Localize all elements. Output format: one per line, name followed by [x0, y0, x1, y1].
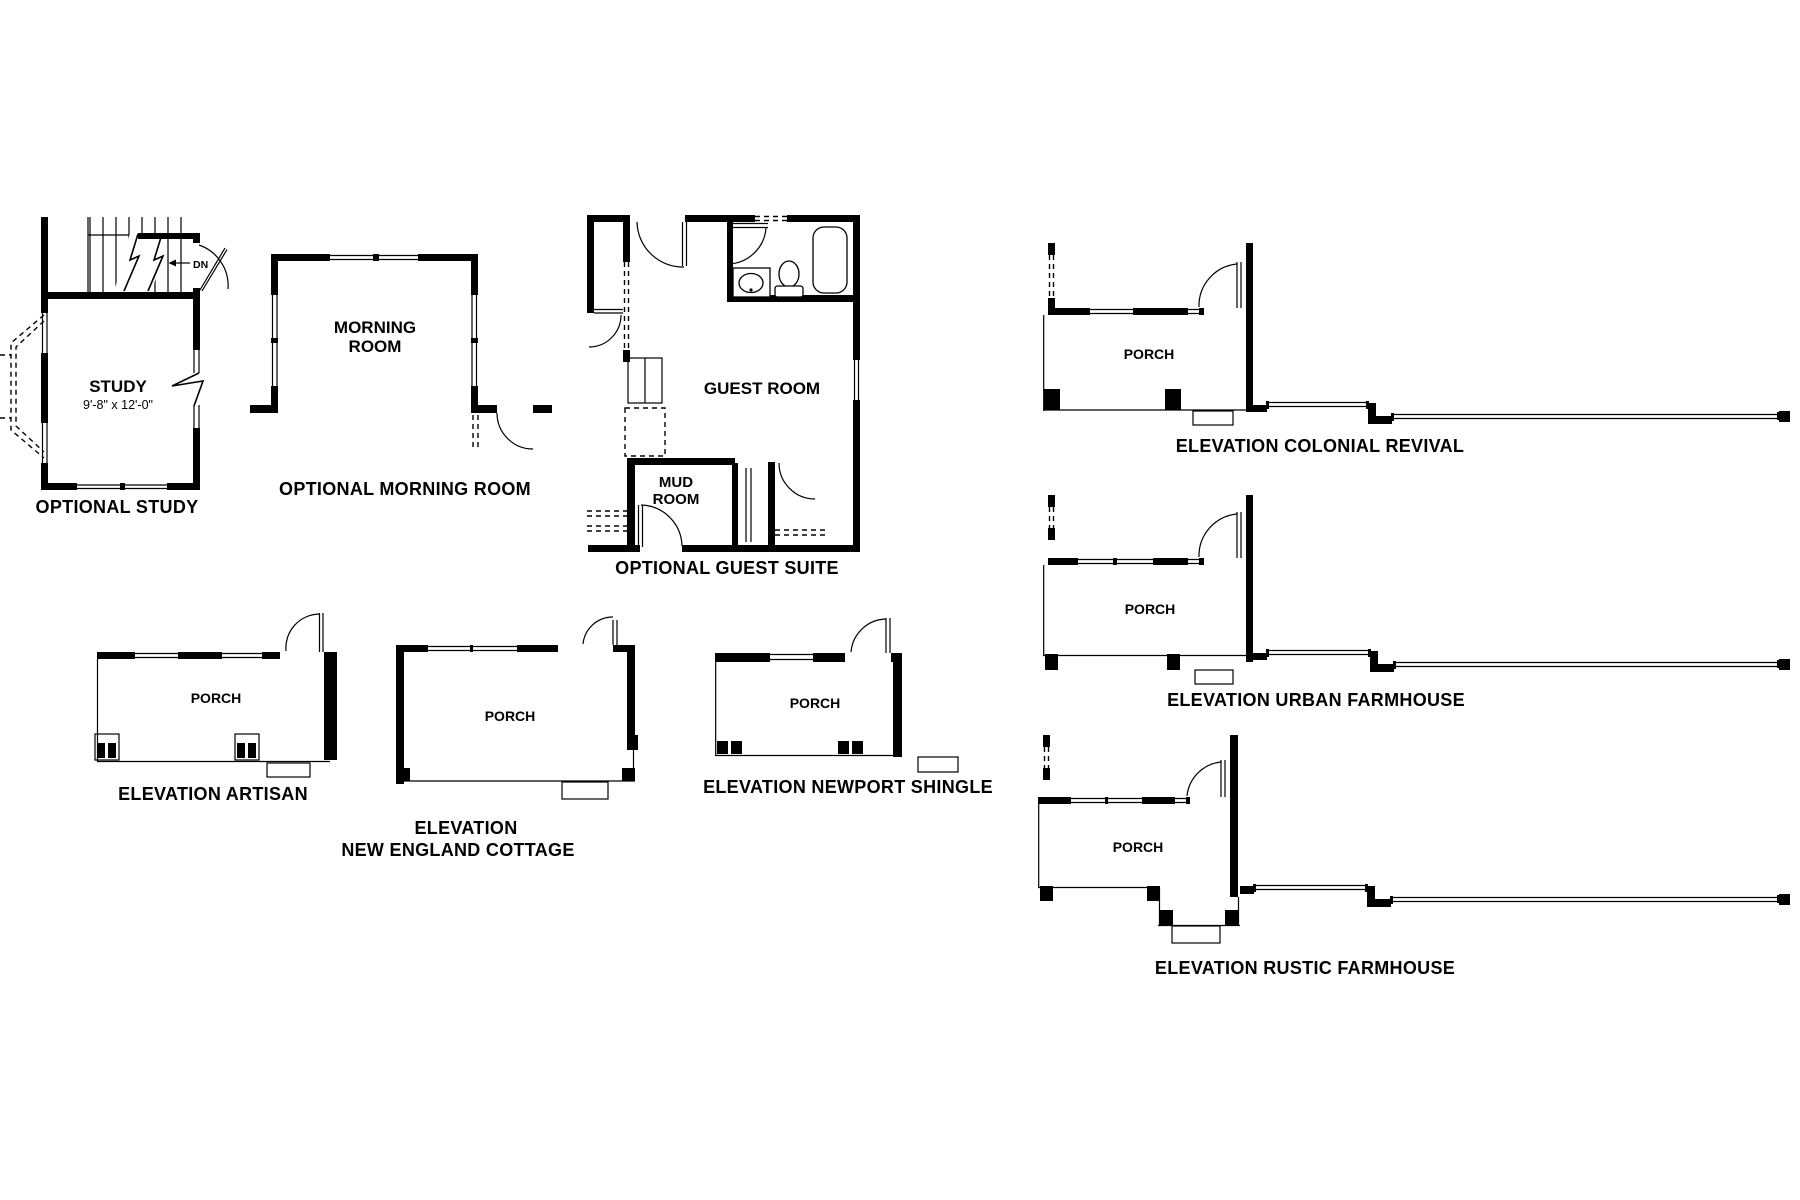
nec-step — [562, 782, 608, 799]
nec-porch-outline — [396, 750, 635, 781]
stair-dn-label: DN — [193, 259, 208, 271]
urban-step — [1195, 670, 1233, 684]
newport-porch-label: PORCH — [790, 695, 841, 711]
wall-break-symbol — [172, 373, 203, 406]
guest-room-door-swing — [637, 222, 687, 267]
study-walls — [41, 217, 200, 490]
urban-posts — [1045, 654, 1180, 670]
rustic-walls — [1038, 735, 1238, 897]
rustic-side-windows — [1240, 884, 1790, 907]
rustic-dashed-wall — [1043, 735, 1050, 780]
staircase: DN — [88, 217, 208, 292]
urban-porch-label: PORCH — [1125, 601, 1176, 617]
morning-room-dashed-wall — [473, 415, 478, 451]
colonial-porch-outline — [1043, 315, 1246, 411]
guest-room-label: GUEST ROOM — [704, 379, 820, 398]
guest-room-window — [855, 360, 859, 400]
nec-posts — [397, 768, 635, 781]
rustic-door-swing — [1187, 760, 1225, 797]
optional-morning-room-caption: OPTIONAL MORNING ROOM — [279, 479, 531, 499]
elevation-colonial-revival: PORCH ELEVATION COLONIAL REVIVAL — [1043, 243, 1790, 456]
elevation-nec-caption-line2: NEW ENGLAND COTTAGE — [341, 840, 574, 860]
artisan-porch-outline — [97, 659, 330, 762]
rustic-porch-label: PORCH — [1113, 839, 1164, 855]
artisan-posts — [95, 734, 259, 760]
optional-study-plan: DN STUDY 9'-8" x 12'-0" OPTIONAL STUD — [0, 217, 228, 517]
optional-guest-suite-plan: GUEST ROOM MUD ROOM OPTIONAL GUEST SUITE — [587, 215, 860, 578]
dn-arrowhead — [169, 260, 177, 267]
mud-room-label-line2: ROOM — [653, 491, 700, 508]
toilet-bowl — [779, 261, 799, 287]
elevation-artisan: PORCH ELEVATION ARTISAN — [95, 613, 337, 804]
elevation-nec-caption-line1: ELEVATION — [414, 818, 517, 838]
colonial-step — [1193, 411, 1233, 425]
colonial-side-windows — [1253, 401, 1790, 424]
urban-dashed-wall — [1048, 495, 1055, 540]
urban-side-windows — [1253, 649, 1790, 672]
morning-room-label-line1: MORNING — [334, 318, 416, 337]
elevation-urban-caption: ELEVATION URBAN FARMHOUSE — [1167, 690, 1465, 710]
elevation-rustic-farmhouse: PORCH ELEVATION RUSTIC FARMHOUSE — [1038, 735, 1790, 978]
artisan-step — [267, 763, 310, 777]
newport-posts — [717, 741, 863, 754]
newport-door-swing — [851, 618, 890, 653]
floor-plan-sheet: DN STUDY 9'-8" x 12'-0" OPTIONAL STUD — [0, 0, 1800, 1200]
sink-drain — [749, 288, 752, 291]
artisan-walls — [97, 652, 337, 760]
hall-door-swing — [589, 310, 623, 348]
mud-room-door-swing — [639, 505, 683, 547]
colonial-dashed-wall — [1048, 243, 1055, 310]
optional-cabinet-dashed — [625, 408, 665, 456]
rustic-step — [1172, 926, 1220, 943]
elevation-rustic-caption: ELEVATION RUSTIC FARMHOUSE — [1155, 958, 1455, 978]
study-dimensions: 9'-8" x 12'-0" — [83, 398, 153, 412]
colonial-door-swing — [1199, 262, 1241, 308]
optional-bay-window — [0, 315, 44, 458]
urban-door-swing — [1199, 512, 1241, 558]
morning-room-door-swing — [497, 413, 533, 449]
artisan-porch-label: PORCH — [191, 690, 242, 706]
optional-guest-suite-caption: OPTIONAL GUEST SUITE — [615, 558, 839, 578]
floor-plan-canvas: DN STUDY 9'-8" x 12'-0" OPTIONAL STUD — [0, 0, 1800, 1200]
elevation-artisan-caption: ELEVATION ARTISAN — [118, 784, 308, 804]
study-room-label: STUDY — [89, 377, 147, 396]
elevation-urban-farmhouse: PORCH ELEVATION URBAN FARMHOUSE — [1043, 495, 1790, 710]
newport-step — [918, 757, 958, 772]
elevation-colonial-caption: ELEVATION COLONIAL REVIVAL — [1176, 436, 1464, 456]
newport-windows — [770, 655, 813, 660]
rustic-porch-outline — [1038, 804, 1240, 926]
urban-walls — [1048, 495, 1253, 662]
bathtub — [813, 227, 847, 293]
nec-porch-label: PORCH — [485, 708, 536, 724]
colonial-posts — [1044, 389, 1181, 410]
morning-room-label-line2: ROOM — [349, 337, 402, 356]
elevation-newport-caption: ELEVATION NEWPORT SHINGLE — [703, 777, 993, 797]
nec-door-swing — [583, 617, 617, 645]
artisan-door-swing — [286, 613, 323, 652]
rustic-posts — [1040, 886, 1238, 925]
colonial-porch-label: PORCH — [1124, 346, 1175, 362]
elevation-newport-shingle: PORCH ELEVATION NEWPORT SHINGLE — [703, 618, 993, 797]
closet-panels — [746, 468, 751, 542]
mud-room-label-line1: MUD — [659, 474, 693, 491]
bathroom-fixtures — [733, 227, 847, 297]
optional-morning-room-plan: MORNING ROOM OPTIONAL MORNING ROOM — [250, 254, 552, 499]
elevation-new-england-cottage: PORCH ELEVATION NEW ENGLAND COTTAGE — [341, 617, 638, 860]
bathroom-door-swing — [727, 224, 768, 265]
optional-study-caption: OPTIONAL STUDY — [36, 497, 199, 517]
closet-door-swing — [779, 463, 815, 499]
toilet-tank — [775, 286, 803, 297]
